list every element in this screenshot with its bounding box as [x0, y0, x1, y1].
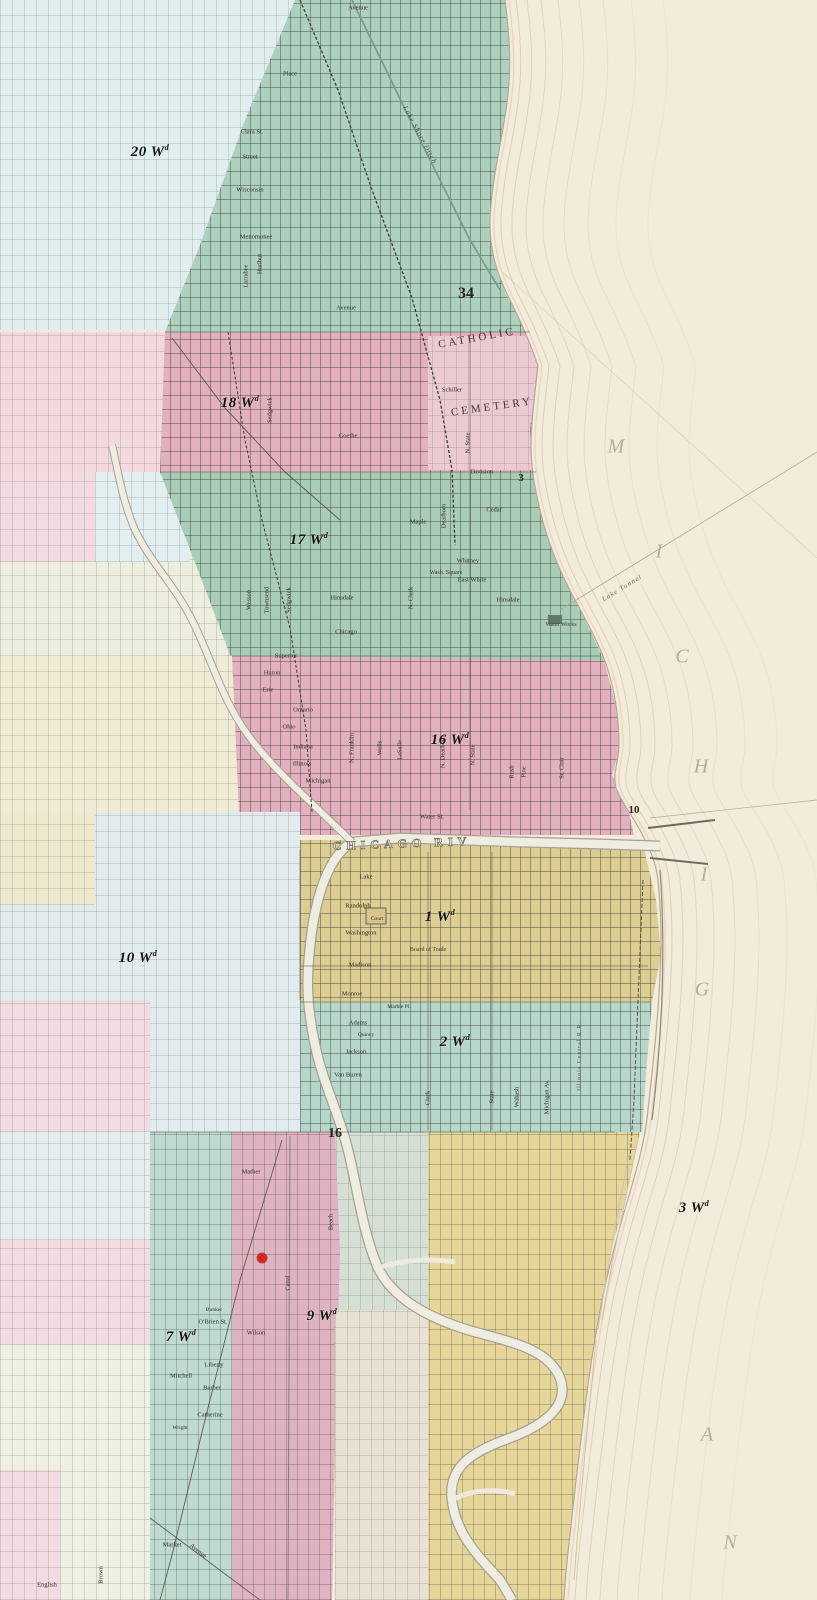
section-number: 34 [458, 285, 474, 303]
street-label: Sedgwick [286, 587, 293, 613]
street-label: Indiana [293, 744, 313, 751]
ward-label: 9 Wd [307, 1307, 337, 1325]
ward-label: 1 Wd [425, 908, 455, 926]
labels-layer: AvenuePlaceClara St.StreetWisconsinMenom… [0, 0, 817, 1600]
street-label: Catherine [197, 1412, 222, 1419]
feature-label: Wash. Square [430, 570, 463, 576]
street-label: Goethe [339, 433, 358, 440]
section-number: 10 [629, 804, 640, 816]
street-label: O'Brien St. [199, 1319, 228, 1326]
street-label: LaSalle [397, 740, 404, 760]
street-label: Michigan Av. [544, 1080, 551, 1115]
lake-michigan-letter: G [695, 979, 709, 1002]
street-label: Hinsdale [330, 595, 353, 602]
street-label: N. State [465, 433, 472, 454]
street-label: Monroe [342, 991, 363, 998]
street-label: State [489, 1091, 496, 1104]
street-label: Avenue [188, 1542, 208, 1560]
street-label: Michigan [306, 778, 331, 785]
street-label: Whitney [457, 558, 479, 565]
street-label: Mather [242, 1169, 261, 1176]
feature-label: Illinois Central R.R. [577, 1021, 583, 1091]
street-label: Randolph [345, 903, 370, 910]
section-number: 3 [518, 472, 524, 484]
street-label: Washington [346, 930, 377, 937]
ward-label: 3 Wd [679, 1199, 709, 1217]
feature-label: Lake Shore Ditch [401, 105, 438, 166]
street-label: Market [163, 1542, 182, 1549]
street-label: Illinois [293, 761, 311, 768]
lake-michigan-letter: I [656, 541, 663, 564]
street-label: Bunker [206, 1307, 222, 1313]
street-label: Madison [349, 962, 372, 969]
street-label: Hurlbut [257, 254, 264, 274]
street-label: Division [471, 469, 493, 476]
lake-michigan-letter: A [701, 1424, 713, 1447]
lake-michigan-letter: C [675, 646, 688, 669]
street-label: Townsend [264, 587, 271, 614]
street-label: Water St. [420, 814, 444, 821]
street-label: N. State [470, 745, 477, 766]
street-label: Wesson [246, 590, 253, 610]
street-label: Larrabee [243, 264, 250, 287]
street-label: Van Buren [334, 1072, 362, 1079]
feature-label: CEMETERY [450, 395, 534, 418]
street-label: Maple [410, 519, 427, 526]
street-label: Cedar [486, 507, 502, 514]
street-label: Marble Pl. [387, 1004, 410, 1010]
street-label: Rush [509, 765, 516, 778]
street-label: Avenue [348, 5, 368, 12]
street-label: Adams [349, 1020, 367, 1027]
street-label: Canal [285, 1275, 292, 1290]
street-label: Beach [328, 1214, 335, 1230]
feature-label: Water Works [545, 622, 576, 628]
lake-michigan-letter: N [723, 1532, 736, 1555]
street-label: Menomonee [240, 234, 273, 241]
section-number: 16 [328, 1126, 342, 1142]
ward-label: 20 Wd [131, 143, 169, 161]
lake-michigan-letter: I [701, 864, 708, 887]
feature-label: CATHOLIC [437, 325, 516, 350]
ward-label: 2 Wd [440, 1033, 470, 1051]
street-label: Lake [360, 874, 373, 881]
street-label: Wabash [514, 1087, 521, 1107]
street-label: Schiller [442, 387, 462, 394]
street-label: Street [242, 154, 257, 161]
street-label: St. Clair [559, 757, 566, 779]
street-label: Hinsdale [496, 597, 519, 604]
street-label: Wells [377, 741, 384, 756]
street-label: English [37, 1582, 57, 1589]
street-label: Clara St. [241, 129, 264, 136]
street-label: N. Clark [408, 587, 415, 609]
street-label: Pine [521, 766, 528, 778]
street-label: Jackson [346, 1049, 367, 1056]
street-label: Wilson [247, 1330, 266, 1337]
lake-michigan-letter: H [694, 756, 708, 779]
street-label: Erie [263, 687, 274, 694]
street-label: Sedgwick [267, 397, 274, 423]
street-label: Court [371, 916, 384, 922]
ward-label: 10 Wd [119, 949, 157, 967]
ward-label: 16 Wd [431, 731, 469, 749]
street-label: Avenue [336, 305, 356, 312]
feature-label: Lake Tunnel [600, 573, 643, 603]
street-label: Wright [172, 1425, 187, 1431]
street-label: Wisconsin [236, 187, 263, 194]
street-label: Barber [203, 1385, 221, 1392]
ward-label: 17 Wd [290, 531, 328, 549]
street-label: Dearborn [441, 504, 448, 529]
street-label: Chicago [335, 629, 357, 636]
street-label: N. Franklin [349, 733, 356, 763]
street-label: Liberty [204, 1362, 223, 1369]
street-label: Mitchell [170, 1373, 192, 1380]
street-label: Ontario [293, 707, 313, 714]
lake-michigan-letter: M [608, 436, 625, 459]
street-label: Superior [275, 653, 297, 660]
street-label: Huron [264, 670, 281, 677]
map-canvas: AvenuePlaceClara St.StreetWisconsinMenom… [0, 0, 817, 1600]
street-label: Place [283, 71, 297, 78]
ward-label: 18 Wd [221, 394, 259, 412]
fire-origin-marker [258, 1254, 267, 1263]
street-label: Ohio [283, 724, 296, 731]
feature-label: Board of Trade [410, 947, 446, 953]
ward-label: 7 Wd [166, 1328, 196, 1346]
feature-label: CHICAGO RIV [332, 834, 471, 854]
street-label: Quincy [358, 1032, 374, 1038]
street-label: Brown [98, 1566, 105, 1584]
street-label: East White [458, 577, 487, 584]
street-label: Clark [425, 1091, 432, 1105]
